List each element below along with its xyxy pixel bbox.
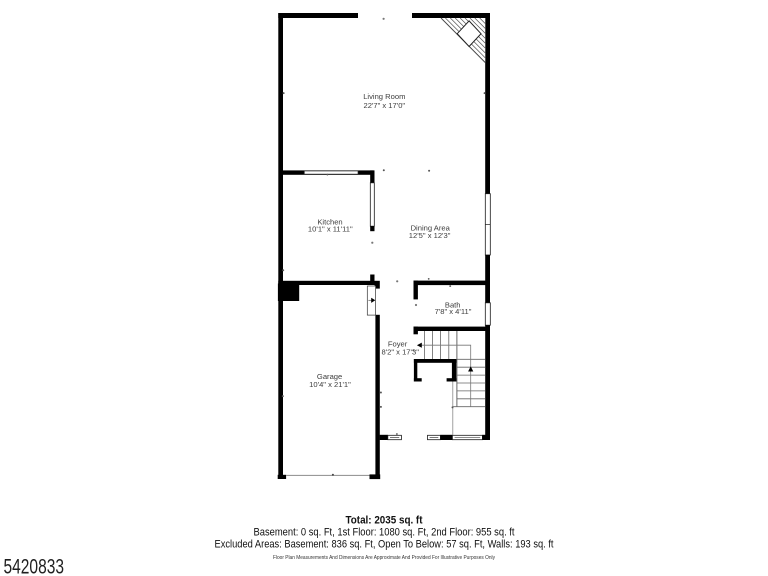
svg-text:Floor Plan Measurements And Di: Floor Plan Measurements And Dimensions A… (273, 555, 495, 561)
svg-text:7'8" x 4'11": 7'8" x 4'11" (435, 307, 472, 316)
svg-text:Basement: 0 sq. Ft, 1st Floor:: Basement: 0 sq. Ft, 1st Floor: 1080 sq. … (254, 527, 515, 539)
svg-text:8'2" x 17'3": 8'2" x 17'3" (381, 347, 419, 356)
svg-text:10'4" x 21'1": 10'4" x 21'1" (309, 380, 351, 389)
svg-text:12'5" x 12'3": 12'5" x 12'3" (409, 231, 451, 240)
svg-text:Excluded Areas: Basement: 836: Excluded Areas: Basement: 836 sq. Ft, Op… (215, 539, 554, 551)
svg-text:10'1" x 11'11": 10'1" x 11'11" (308, 225, 353, 234)
svg-text:Total: 2035 sq. ft: Total: 2035 sq. ft (346, 515, 423, 527)
svg-text:22'7" x 17'0": 22'7" x 17'0" (363, 101, 405, 110)
svg-text:5420833: 5420833 (4, 556, 65, 576)
svg-text:Living Room: Living Room (363, 92, 405, 101)
